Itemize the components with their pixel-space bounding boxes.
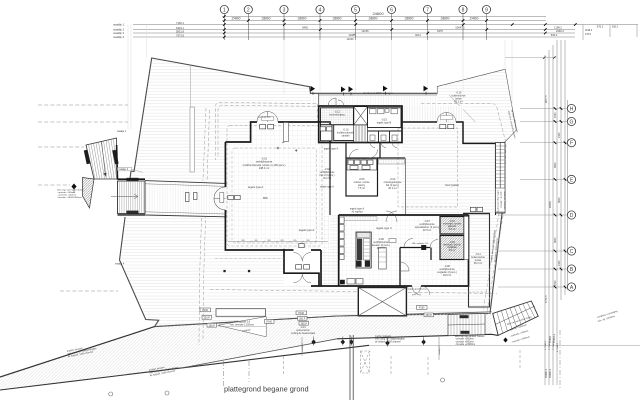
svg-text:16500: 16500 <box>549 200 552 208</box>
svg-text:6475: 6475 <box>437 29 443 33</box>
svg-text:3600: 3600 <box>369 16 379 21</box>
svg-text:2400: 2400 <box>232 16 242 21</box>
svg-text:6: 6 <box>390 8 393 14</box>
svg-text:1198.2: 1198.2 <box>585 29 593 32</box>
svg-text:4 TRAFO: 4 TRAFO <box>556 343 559 352</box>
svg-text:6334.1: 6334.1 <box>176 26 184 30</box>
svg-text:buitenberging: buitenberging <box>329 114 345 117</box>
svg-text:3600: 3600 <box>554 237 557 243</box>
svg-text:hout (patio): hout (patio) <box>445 183 459 187</box>
svg-text:265: 265 <box>280 240 283 242</box>
svg-text:G: G <box>570 120 574 126</box>
svg-text:9: 9 <box>485 8 488 14</box>
svg-text:7.5 m²: 7.5 m² <box>358 187 365 190</box>
svg-text:C: C <box>570 249 574 255</box>
svg-text:12135: 12135 <box>361 29 369 33</box>
svg-text:138.4 m²: 138.4 m² <box>259 166 270 170</box>
svg-text:dn takwerk 1000 verlengen: dn takwerk 1000 verlengen <box>363 92 394 95</box>
svg-text:plattegrond begane grond: plattegrond begane grond <box>224 385 309 394</box>
svg-text:1 TRAFO: 1 TRAFO <box>544 341 547 350</box>
svg-text:2100: 2100 <box>558 132 561 138</box>
svg-text:180 x verblijfsr 2.10: 180 x verblijfsr 2.10 <box>412 242 428 245</box>
svg-text:D: D <box>570 213 574 219</box>
svg-text:265: 265 <box>293 240 296 242</box>
svg-text:7156.1: 7156.1 <box>176 21 184 25</box>
svg-text:11340: 11340 <box>346 37 354 41</box>
svg-text:9465: 9465 <box>302 26 308 30</box>
svg-text:536.2: 536.2 <box>612 26 619 29</box>
svg-text:3600: 3600 <box>405 16 415 21</box>
svg-text:250.P: 250.P <box>299 318 306 321</box>
svg-text:2400: 2400 <box>470 16 480 21</box>
svg-text:4: 4 <box>319 8 322 14</box>
svg-text:29480.2: 29480.2 <box>549 368 552 378</box>
svg-text:tegels type A: tegels type A <box>320 186 334 189</box>
svg-text:- breedte +1800/2400mm: - breedte +1800/2400mm <box>57 196 82 199</box>
svg-text:muting de bestemplats: muting de bestemplats <box>291 332 316 335</box>
svg-text:260.P: 260.P <box>209 324 216 327</box>
svg-text:10647.1: 10647.1 <box>455 26 465 30</box>
svg-text:7: 7 <box>426 8 429 14</box>
svg-text:808: 808 <box>263 196 268 200</box>
svg-text:265: 265 <box>267 240 270 242</box>
svg-text:min. breedte 1:100mm: min. breedte 1:100mm <box>230 324 254 327</box>
svg-text:tegels type A: tegels type A <box>248 185 264 189</box>
svg-text:36.2 m²: 36.2 m² <box>474 262 483 265</box>
svg-text:2: 2 <box>247 8 250 14</box>
svg-text:265.P: 265.P <box>301 322 308 325</box>
svg-text:maatlijn 4: maatlijn 4 <box>438 346 441 355</box>
svg-text:P160: P160 <box>266 321 272 324</box>
svg-text:5: 5 <box>354 8 357 14</box>
svg-text:1500: 1500 <box>554 112 557 118</box>
svg-text:19.9 m²: 19.9 m² <box>443 274 452 277</box>
svg-text:40.1 m²: 40.1 m² <box>388 187 397 190</box>
svg-text:3600: 3600 <box>298 16 308 21</box>
svg-text:- aantrede +240mm: - aantrede +240mm <box>503 190 506 209</box>
svg-text:5771.5: 5771.5 <box>545 295 548 303</box>
svg-text:265: 265 <box>241 240 244 242</box>
svg-text:576.2: 576.2 <box>597 25 604 29</box>
svg-text:- optrede +180mm: - optrede +180mm <box>500 190 503 208</box>
svg-text:maatje 1: maatje 1 <box>117 130 127 133</box>
svg-text:11085: 11085 <box>348 33 356 37</box>
svg-text:tegels type A: tegels type A <box>324 148 339 151</box>
svg-text:+0 nophor: +0 nophor <box>351 211 362 214</box>
svg-text:276.5: 276.5 <box>585 33 592 36</box>
svg-text:3600: 3600 <box>558 197 561 203</box>
svg-text:1500: 1500 <box>554 280 557 286</box>
svg-text:1198.2: 1198.2 <box>554 26 562 30</box>
svg-text:maatlijn 4: maatlijn 4 <box>113 35 125 39</box>
svg-text:12.6 m²: 12.6 m² <box>423 229 432 232</box>
svg-text:47863.1: 47863.1 <box>553 333 556 343</box>
svg-text:F: F <box>570 141 573 147</box>
svg-text:4877.5: 4877.5 <box>545 95 548 103</box>
svg-text:46.2 m²: 46.2 m² <box>377 247 386 250</box>
svg-text:P160: P160 <box>419 307 425 310</box>
svg-text:sanitair: sanitair <box>341 135 349 138</box>
svg-text:3600: 3600 <box>262 16 272 21</box>
svg-text:maatlijn 3: maatlijn 3 <box>113 31 125 35</box>
svg-text:250.P: 250.P <box>426 314 433 317</box>
svg-text:5831.8: 5831.8 <box>176 29 184 33</box>
svg-text:tegels type A.: tegels type A. <box>299 228 315 232</box>
svg-text:P160: P160 <box>298 312 304 315</box>
svg-text:3: 3 <box>283 8 286 14</box>
svg-text:92.1 m²: 92.1 m² <box>454 101 463 104</box>
svg-text:maatlijn 2: maatlijn 2 <box>113 28 125 32</box>
svg-text:7973.8: 7973.8 <box>176 33 184 37</box>
svg-text:265: 265 <box>306 240 309 242</box>
svg-text:maatlijn 4: maatlijn 4 <box>301 343 304 352</box>
svg-text:575 5.05 575: 575 5.05 575 <box>258 117 272 119</box>
svg-text:47863: 47863 <box>549 335 552 343</box>
svg-text:advies trap van houten: advies trap van houten <box>497 190 500 213</box>
svg-text:8: 8 <box>462 8 465 14</box>
svg-text:29480.1: 29480.1 <box>545 368 548 378</box>
svg-text:3600: 3600 <box>441 16 451 21</box>
svg-text:tegels type C: tegels type C <box>376 226 392 230</box>
svg-text:H: H <box>570 107 574 113</box>
svg-text:3600: 3600 <box>333 16 343 21</box>
svg-text:maatje 4: maatje 4 <box>115 263 125 266</box>
svg-text:maatje 2: maatje 2 <box>119 168 129 171</box>
svg-text:tegels type B: tegels type B <box>377 122 392 125</box>
svg-text:maatlijn 1: maatlijn 1 <box>113 23 125 27</box>
svg-text:536.2: 536.2 <box>551 33 558 37</box>
svg-text:250.P: 250.P <box>204 317 211 320</box>
svg-text:1: 1 <box>223 8 226 14</box>
svg-text:3600: 3600 <box>554 162 557 168</box>
svg-text:265: 265 <box>254 240 257 242</box>
svg-text:24600: 24600 <box>372 11 384 16</box>
svg-text:2100: 2100 <box>558 260 561 266</box>
svg-text:2292.2: 2292.2 <box>556 29 564 33</box>
svg-text:9214: 9214 <box>415 33 421 37</box>
